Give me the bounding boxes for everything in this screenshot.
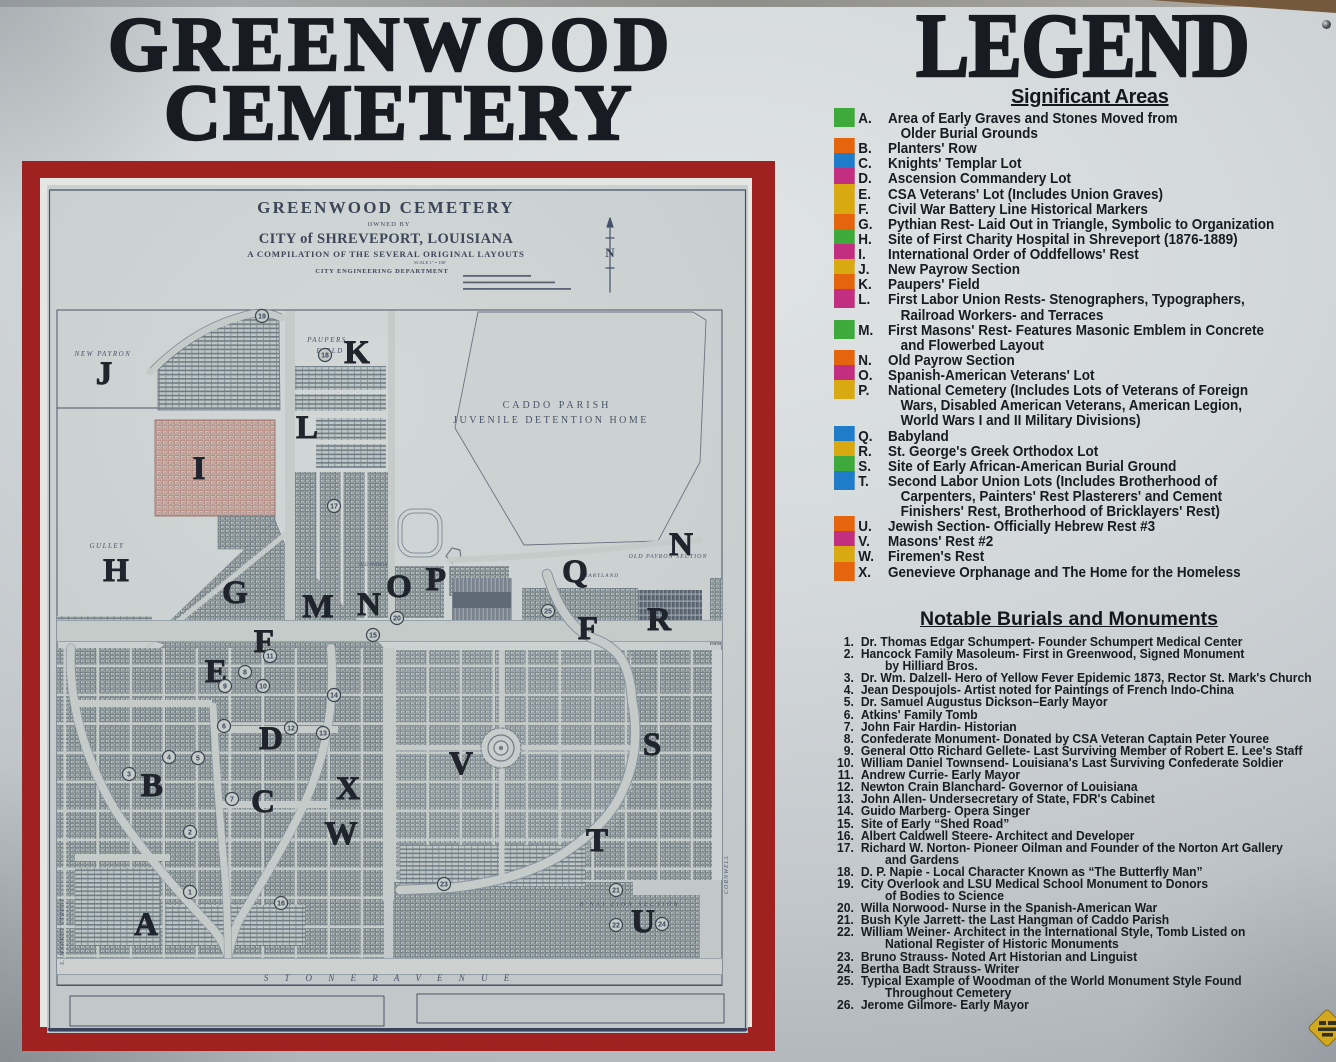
svg-text:13: 13 bbox=[319, 731, 327, 738]
svg-text:7: 7 bbox=[230, 797, 234, 804]
svg-text:I: I bbox=[193, 451, 206, 487]
svg-text:3: 3 bbox=[127, 772, 131, 779]
svg-text:8: 8 bbox=[243, 670, 247, 677]
svg-text:CITY ENGINEERING DEPARTMENT: CITY ENGINEERING DEPARTMENT bbox=[315, 268, 448, 275]
svg-text:GREENWOOD CEMETERY: GREENWOOD CEMETERY bbox=[257, 198, 515, 217]
svg-text:Q: Q bbox=[562, 554, 588, 590]
svg-text:F: F bbox=[578, 611, 598, 647]
svg-text:W: W bbox=[325, 816, 358, 852]
svg-text:L: L bbox=[296, 410, 318, 446]
svg-text:S T O N E R A V E N U E: S T O N E R A V E N U E bbox=[264, 973, 517, 983]
svg-text:OWNED BY: OWNED BY bbox=[368, 221, 411, 228]
svg-text:N: N bbox=[669, 527, 693, 563]
svg-text:9: 9 bbox=[223, 684, 227, 691]
svg-text:O: O bbox=[386, 569, 412, 605]
svg-text:K: K bbox=[344, 335, 370, 371]
svg-text:P: P bbox=[426, 562, 446, 598]
svg-text:B'NAI ZION SECTION: B'NAI ZION SECTION bbox=[580, 902, 681, 908]
svg-text:N: N bbox=[357, 587, 381, 623]
svg-text:10: 10 bbox=[259, 684, 267, 691]
svg-text:X: X bbox=[336, 771, 360, 807]
svg-text:T: T bbox=[586, 823, 608, 859]
svg-text:1: 1 bbox=[188, 890, 192, 897]
svg-text:A: A bbox=[134, 907, 158, 943]
svg-text:M: M bbox=[302, 589, 333, 625]
svg-text:PAUPERS: PAUPERS bbox=[306, 336, 347, 344]
svg-text:CADDO PARISH: CADDO PARISH bbox=[503, 400, 612, 411]
svg-text:G: G bbox=[222, 575, 248, 611]
svg-text:25: 25 bbox=[544, 609, 552, 616]
svg-text:4: 4 bbox=[167, 755, 171, 762]
svg-text:S. MARKET STREET: S. MARKET STREET bbox=[60, 898, 66, 965]
svg-text:U: U bbox=[631, 904, 655, 940]
svg-text:V: V bbox=[449, 746, 473, 782]
svg-text:24: 24 bbox=[658, 922, 666, 929]
svg-text:C: C bbox=[251, 784, 275, 820]
svg-text:B: B bbox=[141, 768, 163, 804]
svg-text:D: D bbox=[259, 721, 283, 757]
svg-text:OLD PAYRON SECTION: OLD PAYRON SECTION bbox=[629, 554, 708, 560]
svg-text:21: 21 bbox=[612, 888, 620, 895]
svg-text:19: 19 bbox=[258, 314, 266, 321]
svg-text:J: J bbox=[96, 356, 113, 392]
svg-text:CITY of SHREVEPORT, LOUISIANA: CITY of SHREVEPORT, LOUISIANA bbox=[259, 231, 514, 247]
svg-text:A COMPILATION OF THE SEVERAL O: A COMPILATION OF THE SEVERAL ORIGINAL LA… bbox=[247, 249, 524, 259]
svg-text:GULLEY: GULLEY bbox=[89, 542, 124, 550]
svg-text:12: 12 bbox=[287, 726, 295, 733]
svg-text:CORNWELL: CORNWELL bbox=[724, 855, 730, 894]
svg-text:18: 18 bbox=[321, 353, 329, 360]
svg-text:23: 23 bbox=[440, 882, 448, 889]
svg-text:OLD PAYRON: OLD PAYRON bbox=[358, 563, 388, 568]
svg-text:6: 6 bbox=[222, 724, 226, 731]
svg-text:R: R bbox=[647, 602, 672, 638]
svg-text:16: 16 bbox=[277, 901, 285, 908]
svg-text:H: H bbox=[103, 553, 129, 589]
svg-text:17: 17 bbox=[330, 504, 338, 511]
svg-text:S: S bbox=[643, 727, 661, 763]
svg-text:14: 14 bbox=[330, 693, 338, 700]
svg-text:2: 2 bbox=[188, 830, 192, 837]
svg-text:SCALE 1" = 100': SCALE 1" = 100' bbox=[414, 260, 446, 265]
svg-text:22: 22 bbox=[612, 923, 620, 930]
svg-text:20: 20 bbox=[393, 616, 401, 623]
svg-text:15: 15 bbox=[369, 633, 377, 640]
svg-text:JUVENILE DETENTION HOME: JUVENILE DETENTION HOME bbox=[453, 415, 649, 426]
svg-text:5: 5 bbox=[196, 756, 200, 763]
svg-text:11: 11 bbox=[266, 654, 274, 661]
svg-text:N: N bbox=[605, 245, 615, 260]
